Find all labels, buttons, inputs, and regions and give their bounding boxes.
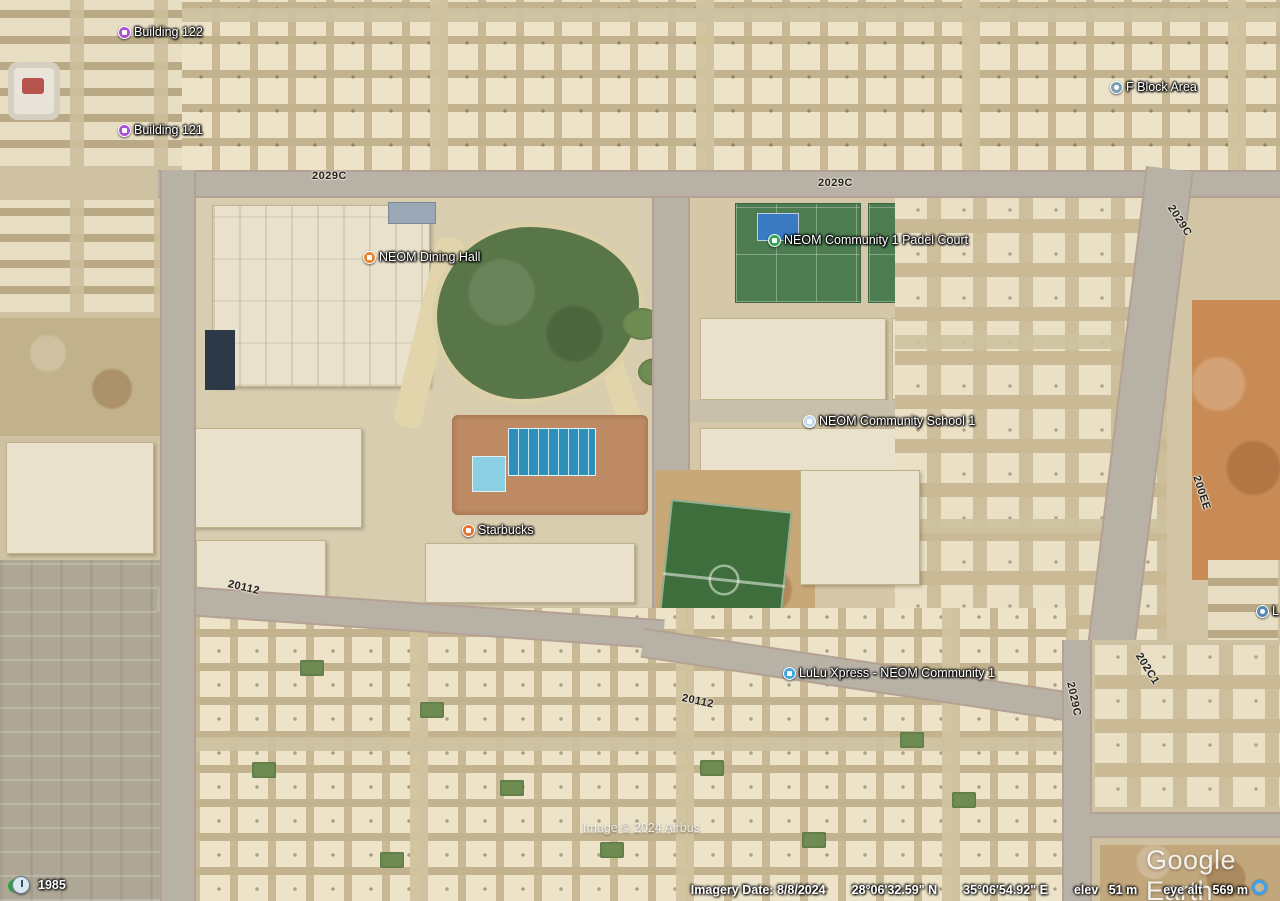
imagery-date-value: 8/8/2024 [777, 883, 826, 897]
placemark-label: Building 122 [134, 25, 203, 39]
placemark-neom-community-school-1[interactable]: NEOM Community School 1 [803, 414, 975, 428]
imagery-date: Imagery Date: 8/8/2024 [691, 883, 826, 897]
placemark-edge-placemark[interactable]: L [1256, 604, 1279, 618]
eye-altitude-readout: eye alt 569 m [1163, 883, 1248, 897]
satellite-imagery[interactable]: 2029C2029C2029C200EE202C12029C2011220112… [0, 0, 1280, 901]
elev-label: elev [1074, 883, 1098, 897]
coffee-icon [462, 524, 475, 537]
elev-value: 51 m [1109, 883, 1138, 897]
longitude-readout: 35°06'54.92" E [963, 883, 1048, 897]
imagery-attribution: Image © 2024 Airbus [583, 821, 700, 835]
placemark-building-121[interactable]: Building 121 [118, 123, 203, 137]
historical-imagery-year[interactable]: 1985 [38, 878, 66, 892]
cart-icon [783, 667, 796, 680]
school-icon [803, 415, 816, 428]
sports-icon [768, 234, 781, 247]
eye-alt-value: 569 m [1213, 883, 1248, 897]
elevation-readout: elev 51 m [1074, 883, 1137, 897]
imagery-date-label: Imagery Date: [691, 883, 774, 897]
pin-icon [1256, 605, 1269, 618]
status-bar: Imagery Date: 8/8/2024 28°06'32.59" N 35… [0, 880, 1248, 900]
latitude-readout: 28°06'32.59" N [852, 883, 938, 897]
placemark-neom-dining-hall[interactable]: NEOM Dining Hall [363, 250, 480, 264]
placemark-label: L [1272, 604, 1279, 618]
historical-imagery-clock-icon[interactable] [12, 876, 30, 894]
placemark-label: LuLu Xpress - NEOM Community 1 [799, 666, 995, 680]
placemark-label: F Block Area [1126, 80, 1197, 94]
restaurant-icon [363, 251, 376, 264]
placemark-label: NEOM Community 1 Padel Court [784, 233, 968, 247]
pin-icon [1110, 81, 1123, 94]
placemark-label: Starbucks [478, 523, 534, 537]
eye-alt-label: eye alt [1163, 883, 1202, 897]
compass-ring-icon [1252, 880, 1267, 895]
building-icon [118, 26, 131, 39]
building-icon [118, 124, 131, 137]
placemark-label: Building 121 [134, 123, 203, 137]
placemark-starbucks[interactable]: Starbucks [462, 523, 534, 537]
placemark-lulu-xpress-neom-community-1[interactable]: LuLu Xpress - NEOM Community 1 [783, 666, 995, 680]
placemark-label: NEOM Dining Hall [379, 250, 480, 264]
placemark-neom-community-1-padel-court[interactable]: NEOM Community 1 Padel Court [768, 233, 968, 247]
placemark-f-block-area[interactable]: F Block Area [1110, 80, 1197, 94]
placemark-label: NEOM Community School 1 [819, 414, 975, 428]
placemark-building-122[interactable]: Building 122 [118, 25, 203, 39]
placemarks-layer: Building 122Building 121F Block AreaNEOM… [0, 0, 1280, 901]
